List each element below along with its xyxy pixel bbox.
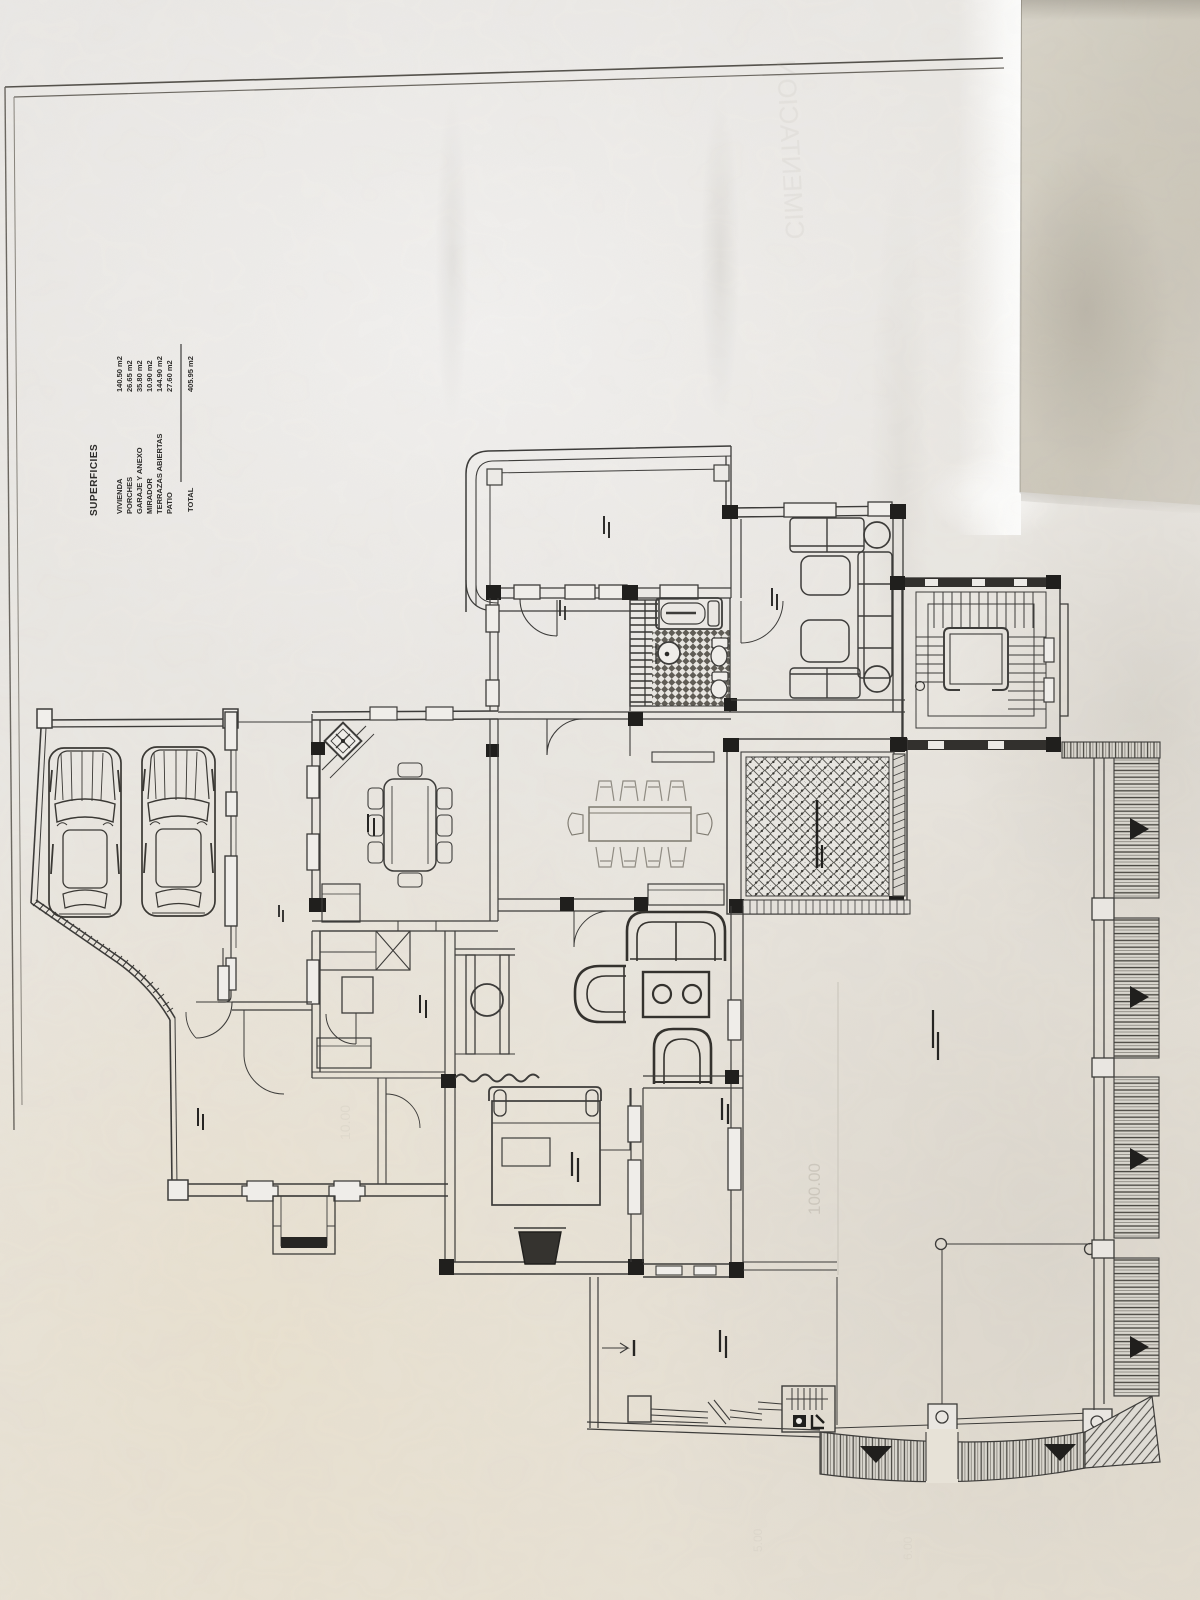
svg-text:6.00: 6.00 xyxy=(901,1536,915,1560)
svg-text:MIRADOR: MIRADOR xyxy=(145,478,154,514)
svg-text:26.65 m2: 26.65 m2 xyxy=(125,360,134,392)
svg-text:PATIO: PATIO xyxy=(165,492,174,514)
svg-text:10.00: 10.00 xyxy=(337,1105,353,1140)
svg-text:405.95 m2: 405.95 m2 xyxy=(186,356,195,392)
svg-text:10.90 m2: 10.90 m2 xyxy=(145,360,154,392)
svg-text:VIVIENDA: VIVIENDA xyxy=(115,478,124,514)
svg-text:TERRAZAS ABIERTAS: TERRAZAS ABIERTAS xyxy=(155,434,164,514)
svg-text:TOTAL: TOTAL xyxy=(186,487,195,512)
svg-text:GARAJE Y ANEXO: GARAJE Y ANEXO xyxy=(135,447,144,514)
svg-text:35.80 m2: 35.80 m2 xyxy=(135,360,144,392)
svg-text:CIMENTACION: CIMENTACION xyxy=(771,59,810,240)
svg-text:144.90 m2: 144.90 m2 xyxy=(155,356,164,392)
svg-text:100.00: 100.00 xyxy=(805,1163,824,1215)
svg-text:PORCHES: PORCHES xyxy=(125,477,134,514)
svg-text:5.00: 5.00 xyxy=(751,1528,765,1552)
svg-text:SUPERFICIES: SUPERFICIES xyxy=(89,444,100,516)
svg-text:140.50 m2: 140.50 m2 xyxy=(115,356,124,392)
svg-text:27.60 m2: 27.60 m2 xyxy=(165,360,174,392)
